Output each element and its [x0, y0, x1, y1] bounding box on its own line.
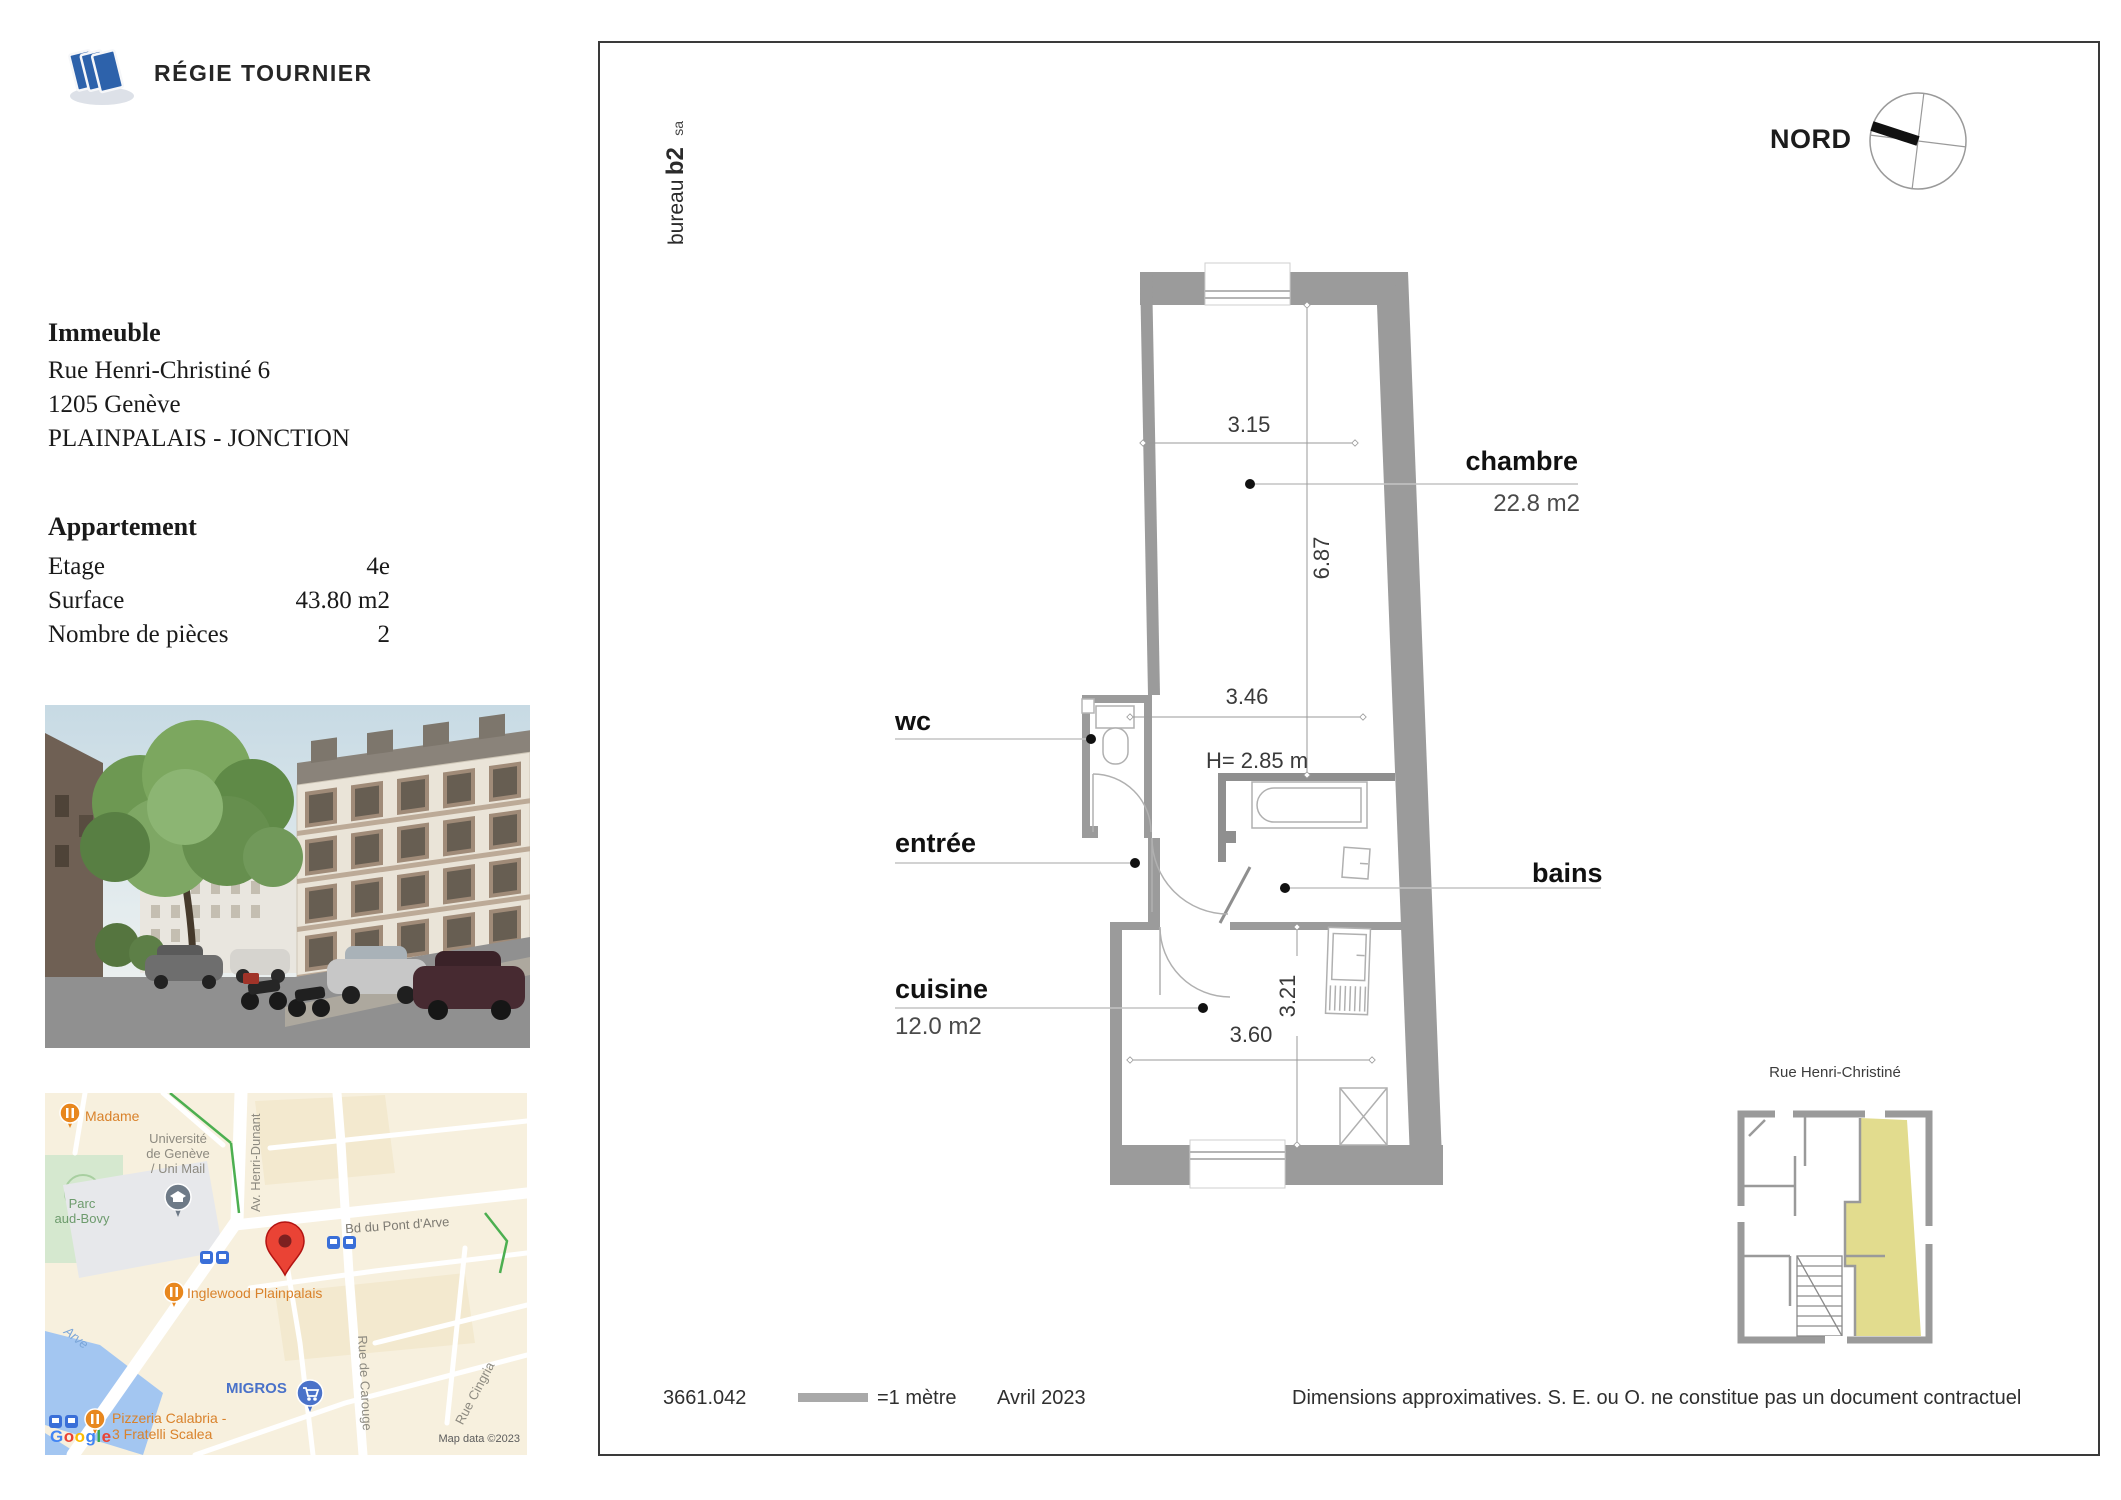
dim-ceiling-height: H= 2.85 m: [1177, 748, 1337, 774]
room-area-chambre: 22.8 m2: [1378, 490, 1580, 518]
row-label: Surface: [48, 587, 124, 614]
mini-plan-street-label: Rue Henri-Christiné: [1730, 1064, 1940, 1081]
building-photo: [45, 705, 530, 1048]
mini-building-plan: [1735, 1106, 1935, 1348]
google-letter: e: [102, 1427, 112, 1446]
map-label-parc: Parc aud-Bovy: [46, 1196, 118, 1226]
row-label: Nombre de pièces: [48, 621, 228, 648]
apartment-row-surface: Surface 43.80 m2: [48, 587, 390, 615]
row-label: Etage: [48, 553, 105, 580]
room-label-wc: wc: [895, 706, 931, 737]
entree-door-arc: [1152, 838, 1228, 914]
map-label-university: Université de Genève / Uni Mail: [128, 1131, 228, 1176]
map-label-migros: MIGROS: [226, 1380, 287, 1397]
compass-icon: [1866, 89, 1970, 193]
scale-bar: [798, 1393, 868, 1402]
google-letter: G: [50, 1427, 64, 1446]
plan-date: Avril 2023: [997, 1387, 1086, 1410]
dim-cuisine-width: 3.60: [1201, 1022, 1301, 1048]
dim-hall-width: 3.46: [1197, 684, 1297, 710]
map-attribution: Map data ©2023: [400, 1433, 520, 1445]
north-label: NORD: [1770, 124, 1852, 155]
room-label-entree: entrée: [895, 828, 976, 859]
building-city: 1205 Genève: [48, 388, 350, 422]
room-label-bains: bains: [1532, 858, 1603, 889]
room-label-cuisine: cuisine: [895, 974, 988, 1005]
map-canvas: [45, 1093, 527, 1455]
room-label-chambre: chambre: [1378, 446, 1578, 477]
building-address: Rue Henri-Christiné 6: [48, 354, 350, 388]
building-block: Immeuble Rue Henri-Christiné 6 1205 Genè…: [48, 318, 350, 456]
map-label-madame: Madame: [85, 1108, 139, 1124]
google-logo: Google: [50, 1427, 112, 1447]
bureau-b2-credit: bureau b2 sa: [662, 75, 690, 245]
row-value: 43.80 m2: [296, 587, 390, 615]
room-area-cuisine: 12.0 m2: [895, 1013, 982, 1041]
plan-reference: 3661.042: [663, 1387, 746, 1410]
dim-chambre-width: 3.15: [1199, 412, 1299, 438]
company-logo: RÉGIE TOURNIER: [58, 34, 418, 118]
google-letter: o: [75, 1427, 86, 1446]
apartment-row-pieces: Nombre de pièces 2: [48, 621, 390, 649]
kitchen-sink-unit: [1326, 927, 1371, 1014]
toilet-bowl: [1103, 728, 1128, 764]
floor-plan: [860, 255, 1620, 1215]
bureau-b2: b2: [662, 147, 689, 175]
building-title: Immeuble: [48, 318, 350, 348]
scale-label: =1 mètre: [877, 1387, 956, 1410]
building-district: PLAINPALAIS - JONCTION: [48, 422, 350, 456]
row-value: 4e: [366, 553, 390, 581]
apartment-row-etage: Etage 4e: [48, 553, 390, 581]
google-letter: g: [86, 1427, 97, 1446]
toilet-tank: [1096, 706, 1134, 728]
map-label-inglewood: Inglewood Plainpalais: [187, 1285, 322, 1301]
bureau-sa: sa: [670, 121, 686, 136]
map-label-av-henri-dunant: Av. Henri-Dunant: [248, 1082, 263, 1212]
bains-sink: [1342, 847, 1370, 879]
company-name: RÉGIE TOURNIER: [154, 60, 373, 87]
apartment-title: Appartement: [48, 512, 197, 542]
google-letter: o: [64, 1427, 75, 1446]
cuisine-door-arc: [1160, 927, 1230, 997]
logo-books-icon: [58, 34, 142, 114]
location-map: Madame Université de Genève / Uni Mail P…: [45, 1093, 527, 1455]
row-value: 2: [378, 621, 391, 649]
bathtub: [1257, 788, 1361, 822]
stove-box: [1340, 1088, 1387, 1145]
map-label-pizzeria: Pizzeria Calabria - 3 Fratelli Scalea: [112, 1410, 226, 1442]
dim-chambre-length: 6.87: [1309, 518, 1335, 598]
disclaimer: Dimensions approximatives. S. E. ou O. n…: [1292, 1387, 2021, 1410]
bureau-word: bureau: [665, 180, 688, 245]
